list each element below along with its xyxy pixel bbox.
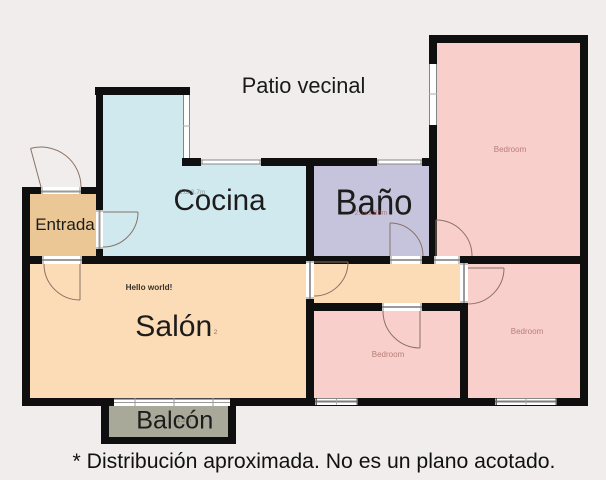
svg-text:Entrada: Entrada [35, 215, 95, 234]
svg-text:Balcón: Balcón [136, 407, 213, 435]
svg-text:Hello world!: Hello world! [126, 283, 173, 292]
svg-text:2.1x1.85m: 2.1x1.85m [355, 210, 388, 217]
svg-text:Patio vecinal: Patio vecinal [242, 73, 366, 98]
svg-text:1.2m: 1.2m [177, 417, 191, 424]
svg-text:Salón: Salón [135, 310, 212, 343]
svg-text:Bedroom: Bedroom [511, 327, 544, 336]
svg-text:2.6x3.7m: 2.6x3.7m [179, 189, 206, 196]
svg-text:Bedroom: Bedroom [372, 350, 405, 359]
svg-text:Bedroom: Bedroom [494, 145, 527, 154]
svg-text:2: 2 [214, 329, 218, 336]
svg-text:* Distribución aproximada. No: * Distribución aproximada. No es un plan… [73, 450, 556, 473]
